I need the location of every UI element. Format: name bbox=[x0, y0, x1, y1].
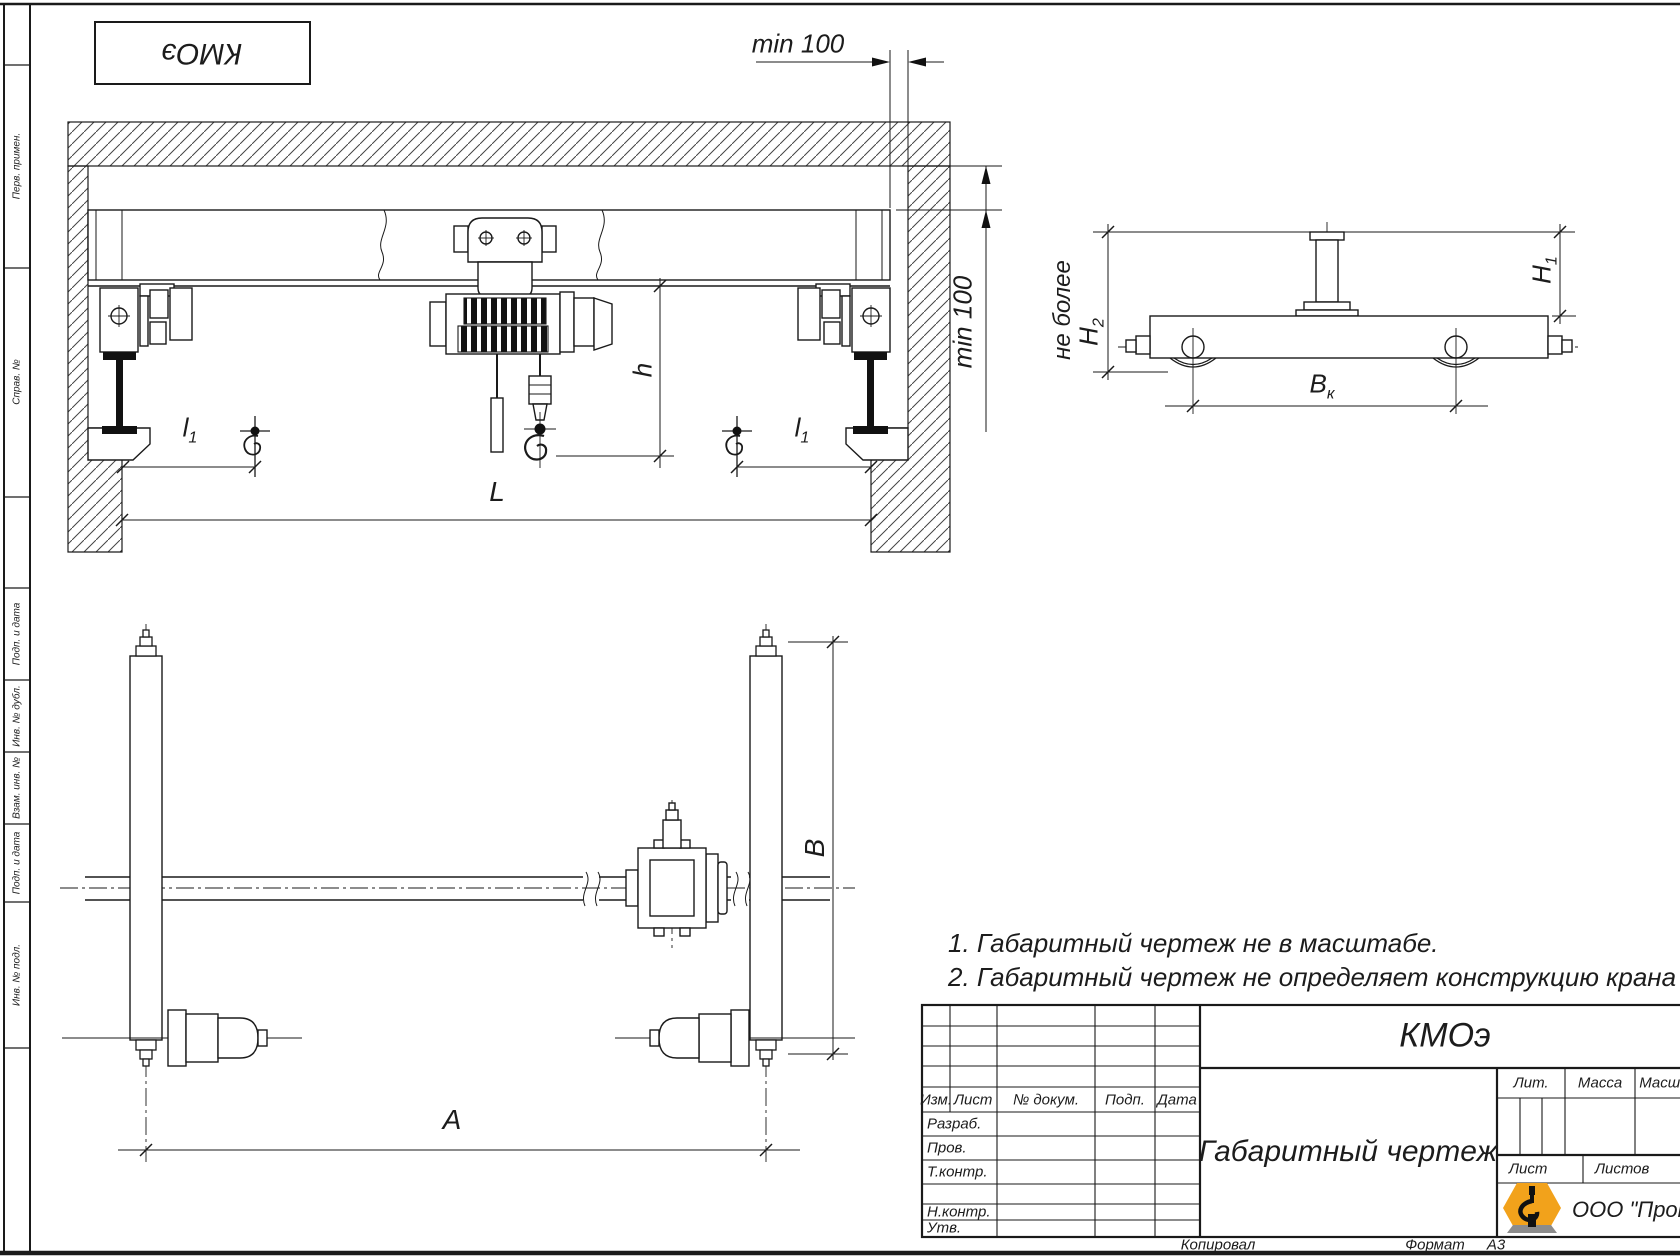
frame-label-perv-primen: Перв. примен. bbox=[12, 133, 23, 199]
dim-label-A: A bbox=[443, 1104, 462, 1136]
col-data: Дата bbox=[1157, 1092, 1197, 1109]
footer-format-label: Формат bbox=[1405, 1237, 1465, 1254]
hoist-trolley bbox=[454, 218, 556, 296]
dim-l1 bbox=[117, 461, 877, 473]
col-podp: Подп. bbox=[1105, 1092, 1145, 1109]
row-tkontr: Т.контр. bbox=[927, 1164, 988, 1181]
frame-label-podp-data-2: Подп. и дата bbox=[12, 832, 23, 895]
dim-label-Bk: Bк bbox=[1310, 368, 1335, 403]
title-block-lines bbox=[922, 1005, 1680, 1237]
dim-label-H1: H1 bbox=[1526, 256, 1561, 284]
dim-label-L: L bbox=[489, 476, 505, 508]
dim-label-l1-right: l1 bbox=[795, 412, 810, 447]
row-utv: Утв. bbox=[927, 1220, 961, 1237]
cell-listov-label: Листов bbox=[1595, 1161, 1650, 1178]
drawing-sheet: КМОэ min 100 min 100 не более H2 H1 Bк h… bbox=[0, 0, 1680, 1260]
company-logo-icon bbox=[1503, 1183, 1561, 1233]
dim-L bbox=[116, 514, 877, 526]
company-name: ООО "ПромМа bbox=[1572, 1197, 1680, 1223]
frame-label-podp-data-1: Подп. и дата bbox=[12, 603, 23, 666]
cell-masshtab: Масшт. bbox=[1639, 1075, 1680, 1092]
stamp-designation: КМОэ bbox=[162, 36, 243, 70]
footer-format-value: А3 bbox=[1487, 1237, 1505, 1254]
dim-A bbox=[118, 1144, 800, 1156]
sheet-frame bbox=[0, 4, 1680, 1253]
col-docnum: № докум. bbox=[1013, 1092, 1079, 1109]
side-view bbox=[1093, 222, 1578, 414]
electric-hoist bbox=[430, 292, 612, 468]
row-razrab: Разраб. bbox=[927, 1116, 981, 1133]
plan-view bbox=[60, 624, 855, 1162]
dim-label-h: h bbox=[628, 363, 659, 377]
row-prov: Пров. bbox=[927, 1140, 967, 1157]
frame-label-inv-podl: Инв. № подл. bbox=[12, 944, 23, 1006]
titleblock-doc-title: Габаритный чертеж bbox=[1199, 1135, 1497, 1169]
cell-lit: Лит. bbox=[1513, 1075, 1548, 1092]
row-nkontr: Н.контр. bbox=[927, 1204, 991, 1221]
frame-label-vzam-inv: Взам. инв. № bbox=[12, 757, 23, 819]
note-line-2: 2. Габаритный чертеж не определяет конст… bbox=[948, 962, 1676, 993]
dim-label-B: B bbox=[799, 839, 831, 858]
plan-trolley bbox=[626, 800, 727, 948]
footer-kopiroval: Копировал bbox=[1181, 1237, 1256, 1254]
dim-label-H2: H2 bbox=[1073, 318, 1108, 346]
titleblock-designation: КМОэ bbox=[1399, 1017, 1491, 1056]
frame-label-inv-dubl: Инв. № дубл. bbox=[12, 685, 23, 747]
dim-label-l1-left: l1 bbox=[183, 412, 198, 447]
cell-list-label: Лист bbox=[1509, 1161, 1548, 1178]
note-line-1: 1. Габаритный чертеж не в масштабе. bbox=[948, 928, 1439, 959]
dim-label-min100-right: min 100 bbox=[948, 276, 979, 369]
frame-label-sprav: Справ. № bbox=[12, 359, 23, 404]
col-izm: Изм. bbox=[920, 1092, 952, 1109]
col-list: Лист bbox=[954, 1092, 993, 1109]
cell-massa: Масса bbox=[1578, 1075, 1622, 1092]
drawing-linework bbox=[0, 0, 1680, 1260]
front-view bbox=[68, 50, 1002, 552]
dim-label-min100-top: min 100 bbox=[752, 29, 845, 60]
